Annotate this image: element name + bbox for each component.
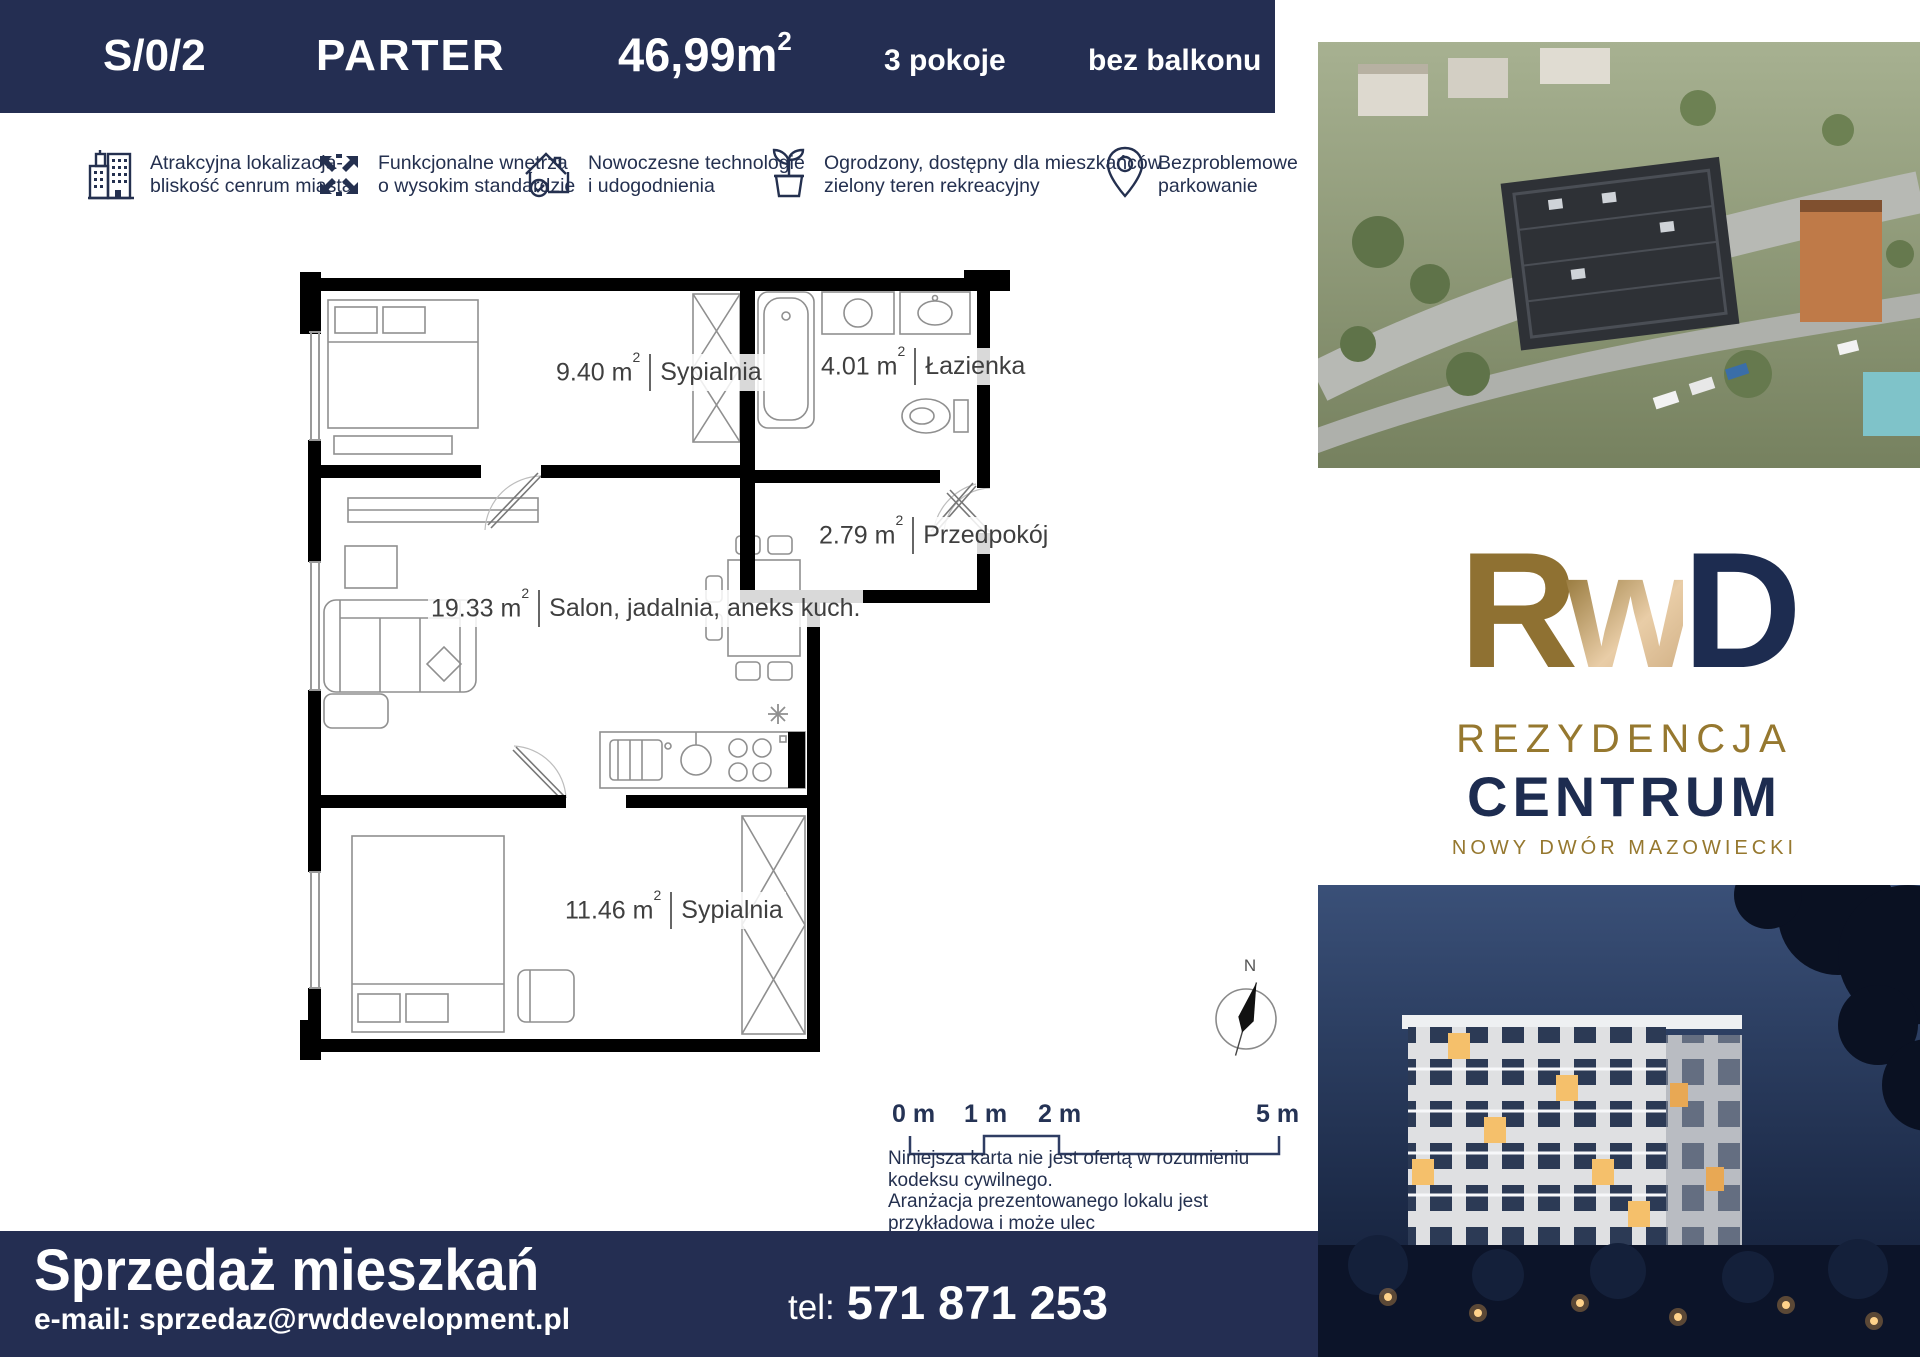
area-value: 46,99m [618, 28, 777, 81]
rooms-count: 3 pokoje [884, 44, 1006, 78]
scale-label-1: 1 m [964, 1100, 1007, 1129]
logo-letters: RwD [1437, 535, 1812, 705]
footer-title: Sprzedaż mieszkań [34, 1237, 539, 1304]
plant-icon [766, 148, 812, 198]
floor-label: PARTER [316, 31, 506, 81]
feature-line: parkowanie [1158, 175, 1298, 198]
phone-label: tel: [788, 1288, 835, 1328]
dusk-photo [1318, 885, 1920, 1357]
room-area: 2.79 m2 [819, 521, 903, 550]
room-name: Salon, jadalnia, aneks kuch. [538, 590, 860, 627]
area-superscript: 2 [777, 26, 791, 56]
feature-green-area: Ogrodzony, dostępny dla mieszkańcówzielo… [766, 148, 1162, 198]
footer-phone: tel: 571 871 253 [788, 1275, 1108, 1330]
scale-label-2: 2 m [1038, 1100, 1081, 1129]
room-area: 9.40 m2 [556, 358, 640, 387]
building-icon [86, 146, 136, 200]
logo-letter-w: w [1566, 518, 1682, 702]
scale-label-0: 0 m [892, 1100, 935, 1129]
footer-bar: Sprzedaż mieszkań e-mail: sprzedaz@rwdde… [0, 1231, 1318, 1357]
room-label-living-room: 19.33 m2 Salon, jadalnia, aneks kuch. [428, 590, 863, 627]
room-name: Łazienka [914, 348, 1025, 385]
room-label-hallway: 2.79 m2 Przedpokój [816, 517, 1051, 554]
compass-north-label: N [1244, 956, 1256, 975]
feature-location: Atrakcyjna lokalizacja-bliskość cenrum m… [86, 146, 353, 200]
floor-plan: 9.40 m2 Sypialnia 4.01 m2 Łazienka 2.79 … [300, 270, 1010, 1060]
room-name: Przedpokój [912, 517, 1048, 554]
room-area: 11.46 m2 [565, 896, 661, 925]
logo-project-name: CENTRUM [1437, 764, 1812, 829]
unit-id: S/0/2 [103, 31, 206, 81]
phone-number: 571 871 253 [847, 1275, 1108, 1330]
email-label: e-mail: [34, 1303, 131, 1336]
offer-card: S/0/2 PARTER 46,99m2 3 pokoje bez balkon… [0, 0, 1920, 1357]
logo-letter-d: D [1683, 518, 1790, 702]
expand-arrows-icon [316, 152, 362, 198]
footer-email: e-mail: sprzedaz@rwddevelopment.pl [34, 1303, 570, 1337]
room-label-bathroom: 4.01 m2 Łazienka [818, 348, 1028, 385]
room-name: Sypialnia [670, 892, 782, 929]
feature-line: Bezproblemowe [1158, 152, 1298, 175]
scale-label-5: 5 m [1256, 1100, 1299, 1129]
logo-city: NOWY DWÓR MAZOWIECKI [1437, 837, 1812, 860]
compass: N [1200, 955, 1292, 1068]
disclaimer-line: Aranżacja prezentowanego lokalu jest prz… [888, 1191, 1298, 1234]
room-area: 19.33 m2 [431, 594, 529, 623]
developer-logo: RwD REZYDENCJA CENTRUM NOWY DWÓR MAZOWIE… [1437, 535, 1812, 860]
room-label-bedroom-1: 9.40 m2 Sypialnia [553, 354, 765, 391]
balcony-info: bez balkonu [1088, 44, 1261, 78]
feature-parking: Bezproblemoweparkowanie [1104, 146, 1298, 198]
north-arrow-icon: N [1200, 955, 1292, 1063]
email-address: sprzedaz@rwddevelopment.pl [139, 1303, 570, 1336]
logo-brand-name: REZYDENCJA [1437, 717, 1812, 762]
feature-technology: Nowoczesne technologiei udogodnienia [522, 148, 805, 198]
header-bar: S/0/2 PARTER 46,99m2 3 pokoje bez balkon… [0, 0, 1275, 113]
house-check-icon [522, 148, 576, 198]
aerial-photo [1318, 42, 1920, 468]
location-pin-icon [1104, 146, 1146, 198]
disclaimer-line: Niniejsza karta nie jest ofertą w rozumi… [888, 1148, 1298, 1191]
room-name: Sypialnia [649, 354, 761, 391]
room-label-bedroom-2: 11.46 m2 Sypialnia [562, 892, 786, 929]
room-area: 4.01 m2 [821, 352, 905, 381]
logo-letter-r: R [1459, 518, 1566, 702]
apartment-area: 46,99m2 [618, 27, 792, 82]
